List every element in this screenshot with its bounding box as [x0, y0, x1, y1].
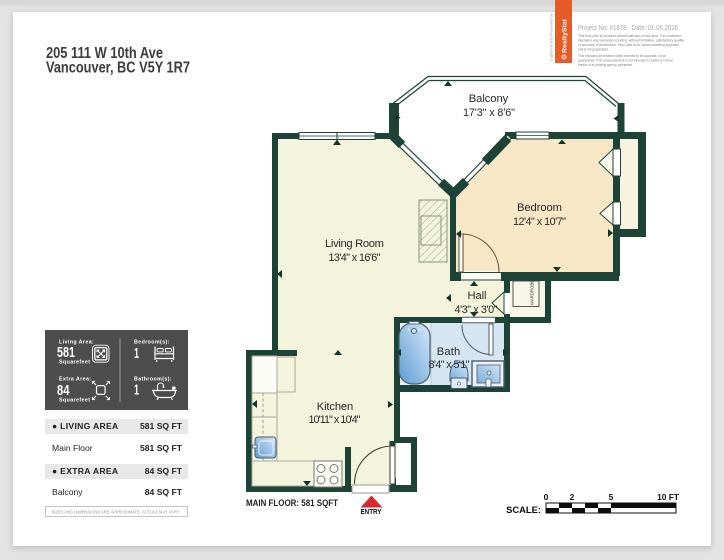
svg-text:10 FT: 10 FT [657, 492, 680, 502]
svg-text:MAIN FLOOR: 581 SQFT: MAIN FLOOR: 581 SQFT [246, 498, 338, 509]
svg-text:SCALE:: SCALE: [506, 504, 541, 515]
svg-text:Bedroom: Bedroom [517, 202, 562, 214]
svg-text:WARDROBE: WARDROBE [530, 280, 535, 305]
svg-text:17'3" x 8'6": 17'3" x 8'6" [463, 107, 515, 119]
svg-text:2: 2 [570, 492, 575, 502]
svg-text:Kitchen: Kitchen [317, 401, 354, 413]
svg-text:Living Room: Living Room [325, 238, 384, 250]
svg-text:10'11" x 10'4": 10'11" x 10'4" [309, 414, 361, 426]
svg-text:Hall: Hall [468, 290, 487, 302]
svg-text:ENTRY: ENTRY [361, 507, 382, 516]
svg-text:5: 5 [609, 492, 614, 502]
svg-text:13'4" x 16'6": 13'4" x 16'6" [329, 252, 381, 264]
svg-text:Balcony: Balcony [469, 93, 509, 105]
svg-text:8'4" x 5'1": 8'4" x 5'1" [429, 359, 470, 371]
svg-text:12'4" x 10'7": 12'4" x 10'7" [513, 216, 566, 228]
svg-text:4'3" x 3'0": 4'3" x 3'0" [455, 304, 498, 316]
svg-text:0: 0 [544, 492, 549, 502]
svg-text:Bath: Bath [437, 346, 461, 358]
